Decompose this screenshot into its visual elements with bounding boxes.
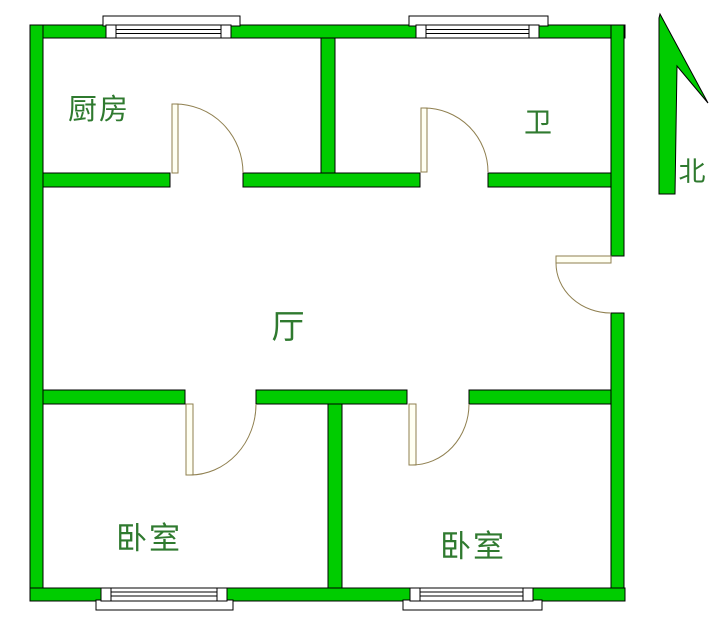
door-swing-arc (412, 404, 469, 465)
hall-label: 厅 (272, 307, 307, 346)
door-leaf (421, 108, 427, 172)
wall-right-upper (611, 25, 624, 256)
window-bathroom (409, 16, 548, 38)
door-swing-arc (556, 263, 611, 313)
wall-kitchen-bath-divider (321, 38, 335, 173)
wall-bedroom-divider (328, 404, 342, 588)
wall-hall-bottom-mid (256, 390, 407, 404)
bedroom-left-label: 卧室 (116, 521, 182, 557)
wall-kitchen-bottom-mid (243, 173, 420, 187)
window-bedroom-left (96, 588, 233, 610)
wall-hall-bottom-left (43, 390, 185, 404)
door-entrance (556, 256, 611, 313)
door-swing-arc (175, 104, 243, 173)
door-leaf (172, 104, 178, 173)
door-bathroom (421, 108, 488, 172)
window-bedroom-right (403, 588, 542, 610)
door-leaf (556, 256, 611, 263)
compass: 北 (659, 14, 708, 194)
door-bedroom-left (186, 404, 256, 475)
wall-kitchen-bottom-left (43, 173, 170, 187)
door-swing-arc (190, 404, 256, 475)
door-swing-arc (424, 108, 488, 172)
floor-plan: 北 厨房 卫 厅 卧室 卧室 (0, 0, 723, 627)
door-bedroom-right (409, 404, 469, 465)
bathroom-label: 卫 (524, 106, 554, 139)
doors (172, 104, 611, 475)
kitchen-label: 厨房 (68, 92, 130, 126)
window-kitchen (103, 16, 240, 38)
wall-left (30, 25, 43, 601)
bedroom-right-label: 卧室 (440, 529, 506, 565)
north-label: 北 (679, 157, 708, 188)
door-kitchen (172, 104, 243, 173)
door-leaf (409, 404, 416, 465)
wall-hall-bottom-right (469, 390, 611, 404)
door-leaf (186, 404, 193, 475)
wall-bath-bottom-right (488, 173, 611, 187)
wall-right-lower (611, 313, 624, 601)
room-labels: 厨房 卫 厅 卧室 卧室 (68, 92, 554, 565)
